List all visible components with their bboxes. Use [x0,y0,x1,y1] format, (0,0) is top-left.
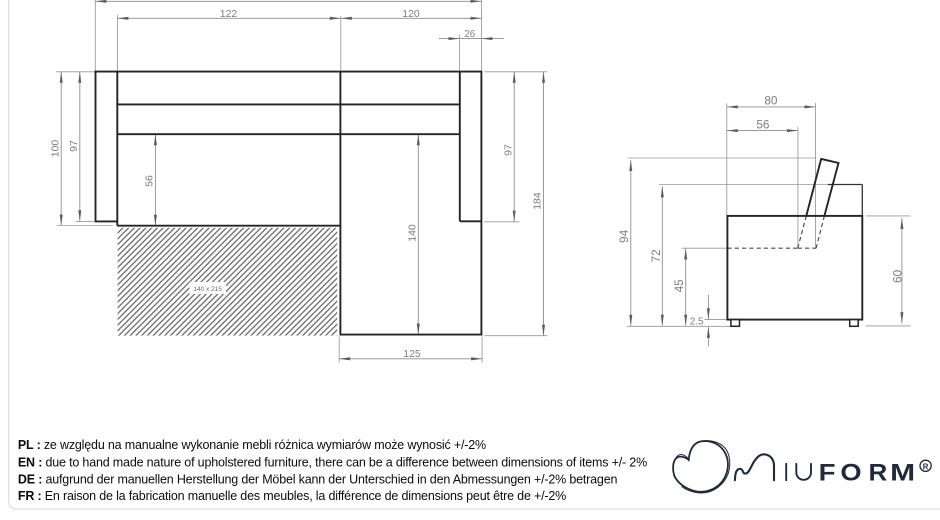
svg-text:M: M [890,460,915,487]
svg-text:DE : aufgrund der manuellen He: DE : aufgrund der manuellen Herstellung … [18,473,618,487]
svg-text:R: R [869,460,888,487]
svg-text:80: 80 [764,93,778,107]
svg-text:140: 140 [407,224,419,242]
svg-text:45: 45 [672,279,686,293]
svg-text:2.5: 2.5 [690,316,704,327]
svg-text:97: 97 [502,144,514,156]
svg-text:140 x 215: 140 x 215 [193,286,222,293]
svg-text:72: 72 [649,249,663,262]
svg-text:R: R [923,462,929,471]
svg-text:120: 120 [402,8,420,20]
svg-text:FR : En raison de la fabricati: FR : En raison de la fabrication manuell… [18,489,566,503]
svg-text:60: 60 [891,269,905,283]
svg-text:97: 97 [68,140,80,152]
svg-text:100: 100 [49,140,61,158]
svg-text:PL : ze względu na manualne wy: PL : ze względu na manualne wykonanie me… [18,438,486,452]
svg-text:O: O [840,460,861,487]
svg-text:56: 56 [144,175,156,187]
svg-text:26: 26 [464,29,475,40]
svg-text:125: 125 [403,348,421,360]
svg-text:94: 94 [617,229,631,243]
svg-text:F: F [819,460,836,487]
svg-text:184: 184 [532,192,544,210]
svg-text:EN : due to hand made nature o: EN : due to hand made nature of upholste… [18,455,647,469]
svg-text:56: 56 [756,117,770,131]
svg-text:122: 122 [220,8,238,20]
